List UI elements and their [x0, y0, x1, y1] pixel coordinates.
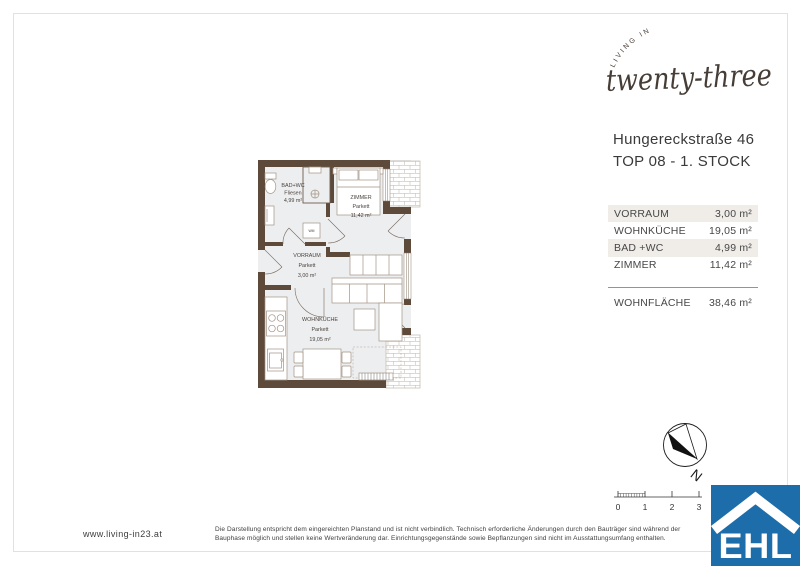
compass: N — [655, 418, 719, 490]
room-name: VORRAUM — [293, 253, 321, 259]
chair — [294, 366, 303, 377]
room-label: BAD +WC — [614, 242, 664, 254]
room-floor: Parkett — [298, 263, 316, 269]
table-row: BAD +WC 4,99 m² — [608, 239, 758, 256]
room-name: BAD+WC — [281, 183, 304, 189]
scale-label-3: 3 — [697, 502, 702, 512]
ehl-logo: EHL — [711, 485, 800, 566]
scale-minor-ticks — [618, 494, 645, 498]
website-link[interactable]: www.living-in23.at — [83, 529, 162, 539]
room-area: 19,05 m² — [709, 225, 752, 237]
total-label: WOHNFLÄCHE — [614, 297, 691, 309]
room-floor: Fliesen — [284, 191, 301, 197]
north-label: N — [688, 466, 706, 485]
room-area: 11,42 m² — [710, 259, 752, 271]
nightstand — [333, 168, 337, 174]
toilet — [265, 180, 276, 194]
table-row: ZIMMER 11,42 m² — [608, 257, 758, 274]
room-name: WOHNKÜCHE — [302, 316, 338, 323]
chair — [342, 366, 351, 377]
room-label: ZIMMER — [614, 259, 657, 271]
scale-label-2: 2 — [670, 502, 675, 512]
scale-labels: 0 1 2 3 — [616, 502, 702, 512]
disclaimer: Die Darstellung entspricht dem eingereic… — [215, 525, 715, 543]
floor-plan: BAD+WC Fliesen 4,99 m² ZIMMER Parkett 11… — [253, 157, 423, 392]
room-label: WOHNKÜCHE — [614, 225, 686, 237]
page: LIVING IN twenty-three Hungereckstraße 4… — [0, 0, 800, 566]
bath-sink — [265, 206, 274, 225]
chair — [342, 352, 351, 363]
address-unit: TOP 08 - 1. STOCK — [613, 151, 754, 173]
total-area: 38,46 m² — [709, 297, 752, 309]
room-area: 3,00 m² — [715, 208, 752, 220]
ehl-logo-text: EHL — [719, 527, 793, 566]
living-in-23-logo: LIVING IN twenty-three — [598, 14, 780, 108]
sofa-chaise — [379, 303, 402, 341]
loggia-top — [386, 161, 420, 207]
room-area: 3,00 m² — [298, 273, 316, 279]
area-table: VORRAUM 3,00 m² WOHNKÜCHE 19,05 m² BAD +… — [608, 205, 758, 312]
toilet-tank — [265, 173, 276, 179]
scale-label-0: 0 — [616, 502, 621, 512]
coffee-table — [354, 309, 375, 330]
room-area: 4,99 m² — [715, 242, 752, 254]
scale-lines — [614, 491, 702, 497]
room-area: 4,99 m² — [284, 198, 302, 204]
scale-bar: 0 1 2 3 — [610, 487, 714, 515]
table-total-row: WOHNFLÄCHE 38,46 m² — [608, 295, 758, 312]
room-floor: Parkett — [352, 204, 370, 210]
room-area: 11,42 m² — [351, 213, 372, 219]
room-floor: Parkett — [311, 327, 329, 333]
room-name: ZIMMER — [350, 195, 371, 201]
radiator — [359, 373, 393, 380]
room-area: 19,05 m² — [309, 337, 330, 343]
logo-script-text: twenty-three — [605, 58, 772, 99]
washing-machine-label: WM — [308, 229, 314, 233]
address-block: Hungereckstraße 46 TOP 08 - 1. STOCK — [613, 129, 754, 173]
room-label: VORRAUM — [614, 208, 669, 220]
address-street: Hungereckstraße 46 — [613, 129, 754, 151]
table-divider — [608, 287, 758, 288]
chair — [294, 352, 303, 363]
table-row: VORRAUM 3,00 m² — [608, 205, 758, 222]
disclaimer-line-1: Die Darstellung entspricht dem eingereic… — [215, 525, 715, 534]
dining-table — [303, 349, 341, 379]
table-row: WOHNKÜCHE 19,05 m² — [608, 222, 758, 239]
scale-label-1: 1 — [643, 502, 648, 512]
disclaimer-line-2: Bauphase möglich und stellen keine Wertv… — [215, 534, 715, 543]
